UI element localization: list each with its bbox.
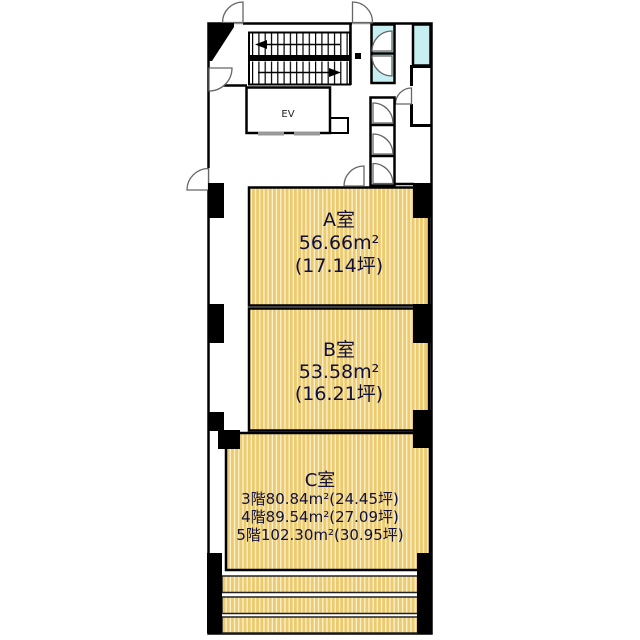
elevator-door-mark: [258, 132, 284, 136]
room-b-area: 53.58m²: [299, 361, 380, 383]
room-c-name: C室: [305, 470, 336, 491]
floor-plan-svg: EV: [0, 0, 640, 640]
pillar-left-3: [208, 412, 224, 431]
pillar-left-2: [208, 304, 224, 343]
pillar-right-3: [413, 410, 431, 448]
room-b-tsubo: (16.21坪): [295, 383, 383, 405]
room-c-floor3: 3階80.84m²(24.45坪): [241, 490, 399, 508]
room-c-floor5: 5階102.30m²(30.95坪): [236, 526, 403, 544]
room-b-name: B室: [323, 339, 355, 361]
stair-landing: [249, 55, 350, 61]
floor-plan-page: EV: [0, 0, 640, 640]
stairwell: [249, 33, 361, 85]
pillar-right-1: [413, 183, 431, 218]
room-a-area: 56.66m²: [299, 232, 380, 254]
door-arc-entrance-right: [353, 2, 373, 23]
balcony-strip-1: [222, 576, 418, 593]
pillar-right-2: [413, 304, 431, 343]
pillar-left-1: [208, 183, 224, 218]
door-arc-entrance-left: [223, 2, 244, 23]
balcony-strip-3: [222, 617, 418, 633]
balcony-strip-2: [222, 597, 418, 614]
duct-room: [413, 25, 431, 66]
stair-post: [355, 53, 361, 59]
door-arc-side-exit: [187, 169, 209, 191]
wall-bottom-right: [417, 553, 433, 633]
room-a-name: A室: [323, 209, 355, 231]
elevator-door-mark: [294, 132, 320, 136]
wall-bottom-left: [207, 553, 222, 633]
elevator-label: EV: [281, 109, 294, 120]
pillar-room-c-left: [218, 430, 240, 449]
room-a-tsubo: (17.14坪): [295, 255, 383, 277]
room-c-floor4: 4階89.54m²(27.09坪): [241, 508, 399, 526]
